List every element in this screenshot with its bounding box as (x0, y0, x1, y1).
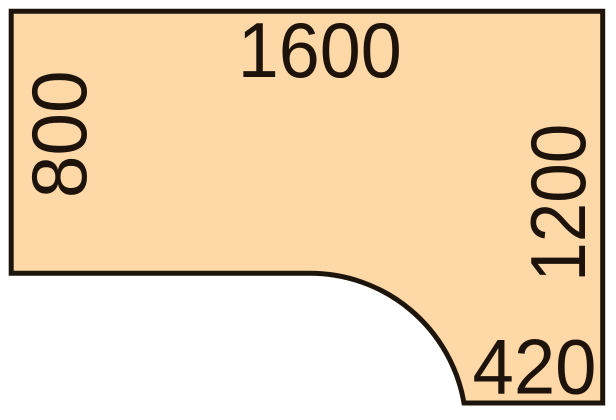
svg-text:420: 420 (473, 322, 597, 410)
svg-text:800: 800 (15, 70, 103, 198)
svg-text:1200: 1200 (514, 124, 602, 282)
svg-text:1600: 1600 (238, 6, 402, 94)
